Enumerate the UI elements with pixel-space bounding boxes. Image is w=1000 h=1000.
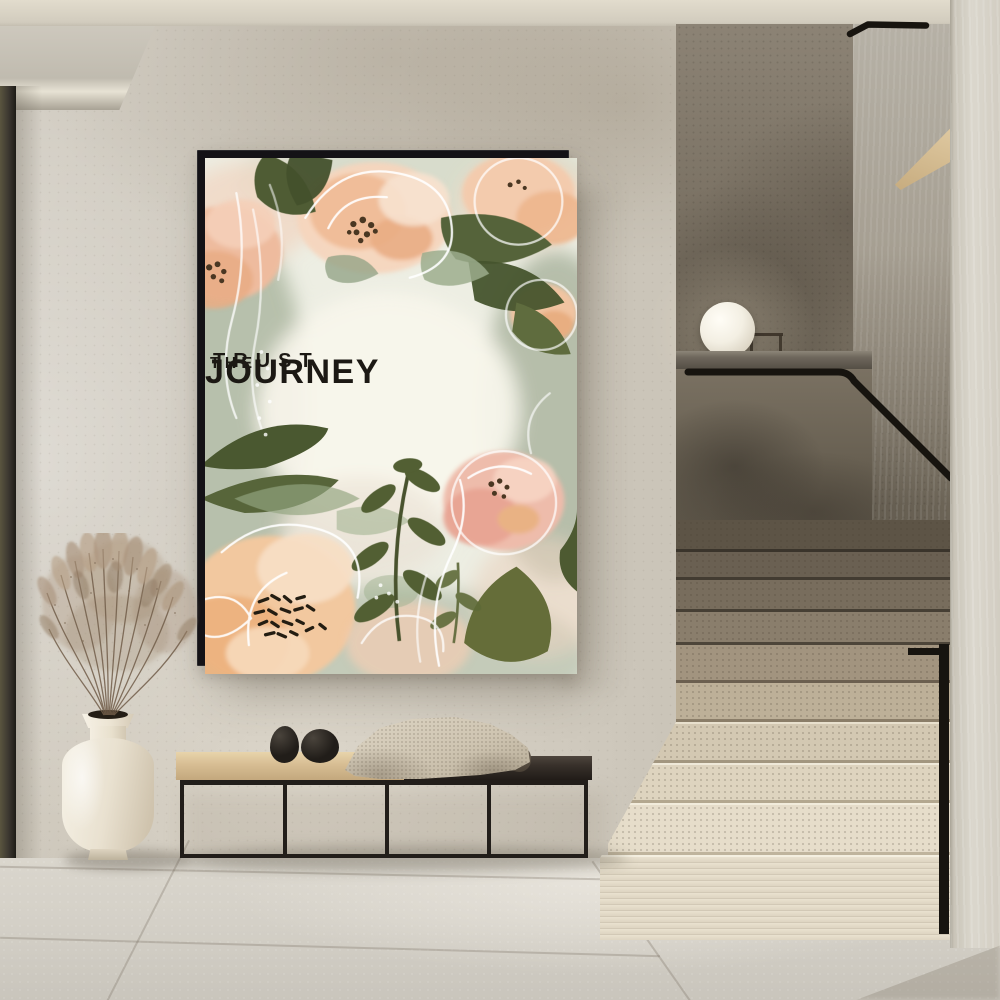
bench-frame-divider [283,780,287,858]
flower-bottom-left [205,534,355,674]
decor-stone [270,726,299,763]
hallway-scene: TRUST THE JOURNEY [0,0,1000,1000]
stair-step [650,722,952,763]
stair-step [676,520,952,552]
handrail-post [939,644,949,934]
stair-step [676,612,952,645]
right-pillar [950,0,1000,948]
poster-artwork: TRUST THE JOURNEY [205,158,577,674]
poster-art-svg [205,158,577,674]
vase-foot [88,849,128,860]
sphere-lamp [700,302,755,357]
bench-metal-frame [180,780,588,858]
stair-step [676,552,952,580]
vase-shadow [64,850,190,870]
wall-corner-shade [16,86,42,862]
dark-door-edge [0,86,16,934]
stair-step [626,763,952,803]
ceiling [0,0,1000,27]
framed-poster: TRUST THE JOURNEY [197,150,569,666]
stair-step [666,683,952,722]
parapet-ledge [676,351,872,369]
decor-stone [301,729,339,763]
ceramic-vase [62,738,154,852]
bench-frame-divider [487,780,491,858]
stair-step [676,580,952,612]
stair-bottom-riser [600,855,952,940]
pampas-grass [25,533,215,738]
stair-step [608,803,952,855]
bench-frame-divider [385,780,389,858]
poster-quote-line3: JOURNEY [205,353,380,392]
